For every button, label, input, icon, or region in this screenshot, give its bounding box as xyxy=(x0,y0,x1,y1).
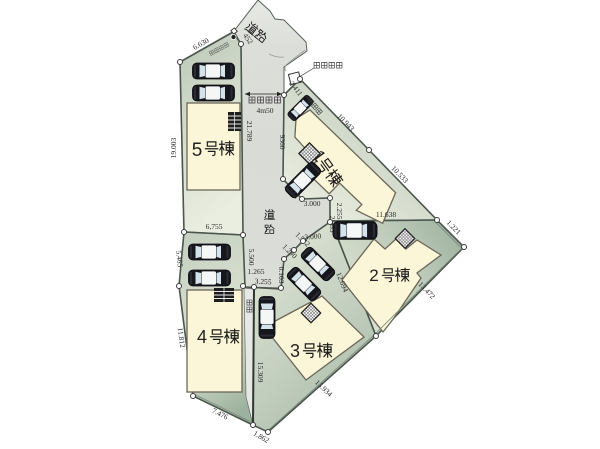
svg-text:4: 4 xyxy=(197,327,207,347)
svg-text:21.789: 21.789 xyxy=(245,121,254,142)
svg-text:2: 2 xyxy=(369,266,378,285)
svg-text:4m50: 4m50 xyxy=(256,106,273,115)
svg-text:6,755: 6,755 xyxy=(206,222,223,231)
svg-text:19.003: 19.003 xyxy=(169,137,178,158)
svg-text:0.103: 0.103 xyxy=(277,267,286,284)
svg-text:1.265: 1.265 xyxy=(248,267,265,276)
svg-text:3.000: 3.000 xyxy=(304,199,321,208)
svg-text:15.309: 15.309 xyxy=(256,362,265,383)
svg-text:11.638: 11.638 xyxy=(376,210,397,219)
svg-text:3: 3 xyxy=(290,341,300,361)
svg-text:5: 5 xyxy=(192,140,203,161)
svg-text:5.465: 5.465 xyxy=(174,250,185,268)
svg-text:9360: 9360 xyxy=(278,135,287,150)
svg-text:5.500: 5.500 xyxy=(247,249,256,266)
svg-text:3.255: 3.255 xyxy=(254,277,272,287)
